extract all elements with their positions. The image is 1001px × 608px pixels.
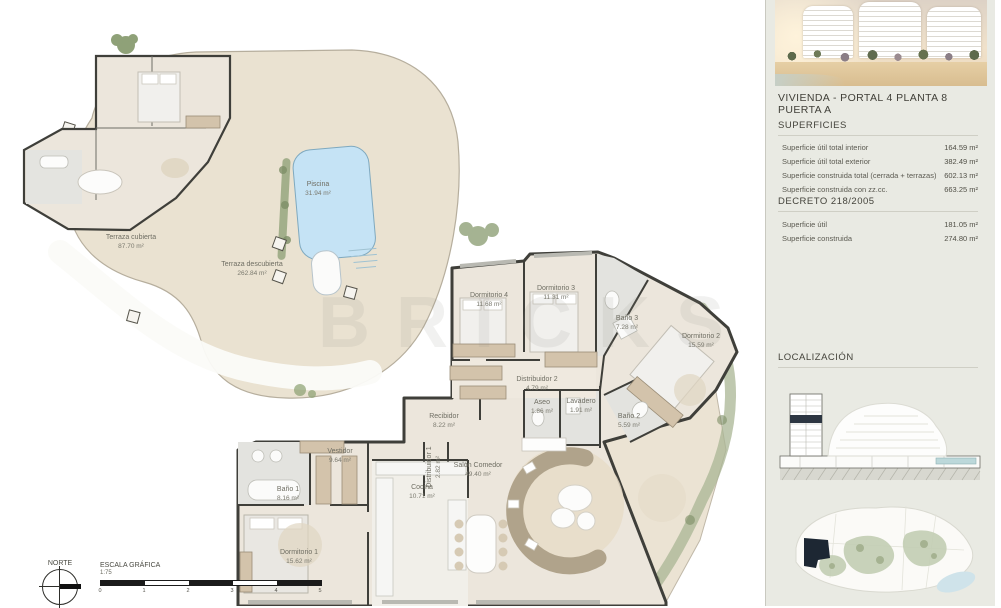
sea-water xyxy=(775,74,845,86)
highlighted-floor xyxy=(790,415,822,423)
tree-icon xyxy=(111,34,138,54)
building-render-photo xyxy=(775,0,987,86)
escala-label: ESCALA GRÁFICA xyxy=(100,562,328,569)
decreto-heading: DECRETO 218/2005 xyxy=(778,196,978,212)
graphic-scale: ESCALA GRÁFICA 1:75 0 1 2 3 4 5 xyxy=(100,562,328,596)
north-indicator: NORTE xyxy=(30,560,90,605)
table-row: Superficie útil total interior 164.59 m² xyxy=(782,141,978,155)
scale-bar xyxy=(100,580,322,586)
unit-title: VIVIENDA - PORTAL 4 PLANTA 8 PUERTA A xyxy=(778,92,978,116)
floor-plan-area: BRICKS Piscina31.94 m² Terraza cubierta8… xyxy=(0,0,765,606)
table-row: Superficie útil 181.05 m² xyxy=(782,218,978,232)
superficies-heading: SUPERFICIES xyxy=(778,120,978,136)
norte-label: NORTE xyxy=(48,560,72,567)
building-section-diagram xyxy=(776,386,986,484)
localizacion-heading: LOCALIZACIÓN xyxy=(778,352,978,368)
site-plan-diagram xyxy=(776,490,986,602)
floor-plan-drawing xyxy=(0,0,765,606)
decreto-table: Superficie útil 181.05 m² Superficie con… xyxy=(782,218,978,246)
north-compass-icon xyxy=(42,569,78,605)
table-row: Superficie útil total exterior 382.49 m² xyxy=(782,155,978,169)
table-row: Superficie construida con zz.cc. 663.25 … xyxy=(782,183,978,197)
scale-numbers: 0 1 2 3 4 5 xyxy=(100,588,328,596)
table-row: Superficie construida total (cerrada + t… xyxy=(782,169,978,183)
superficies-table: Superficie útil total interior 164.59 m²… xyxy=(782,141,978,197)
info-sidebar: VIVIENDA - PORTAL 4 PLANTA 8 PUERTA A SU… xyxy=(765,0,995,606)
table-row: Superficie construida 274.80 m² xyxy=(782,232,978,246)
section-tower xyxy=(790,394,822,456)
escala-ratio: 1:75 xyxy=(100,570,328,576)
floorplan-document-page: { "watermark": "BRICKS", "sidebar": { "t… xyxy=(0,0,1001,606)
